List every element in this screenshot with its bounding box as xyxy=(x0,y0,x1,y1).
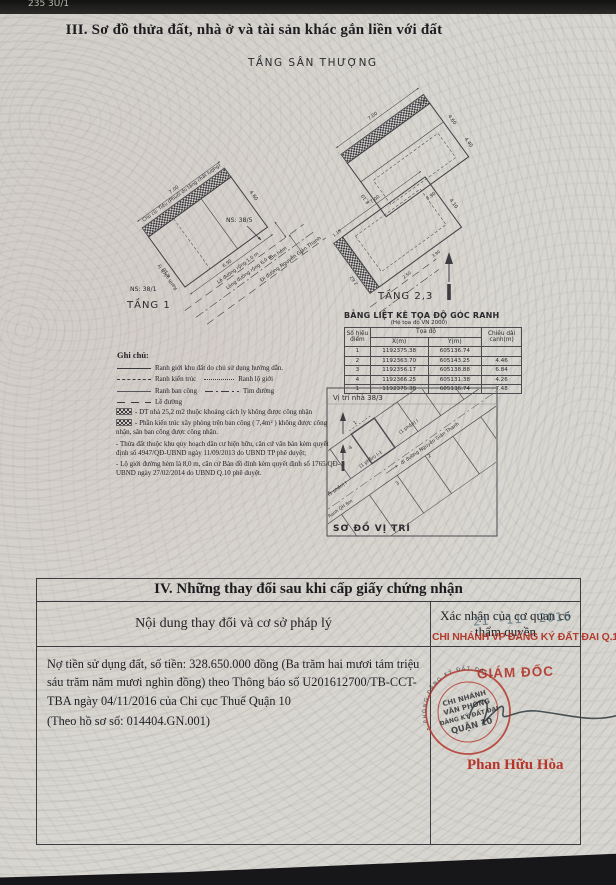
legend-line-dotted xyxy=(204,376,234,380)
dim-f23-b1: 2.50 xyxy=(402,270,413,280)
legend-item: Ranh giới khu đất do chủ sử dụng hướng d… xyxy=(155,364,283,372)
legend-title: Ghi chú: xyxy=(117,350,339,360)
hatch-swatch-icon xyxy=(116,419,132,426)
table-row: 31192356.17605138.886.84 xyxy=(345,366,522,375)
dim-roof-right2: 4.40 xyxy=(463,137,474,149)
change-content-cell: Nợ tiền sử dụng đất, số tiền: 328.650.00… xyxy=(37,647,431,844)
note-3: - Thửa đất thuộc khu quy hoạch dân cư hi… xyxy=(116,440,340,458)
col-y: Y(m) xyxy=(428,337,482,347)
floor1-plan: 7.00 4.60 4.10 6.90 Chủ cũ: Tiêu (Phuổi … xyxy=(122,132,326,330)
north-arrow-icon xyxy=(445,252,453,300)
dim-f1-top: 7.00 xyxy=(168,184,180,195)
office-stamp-text: CHI NHÁNH VP ĐĂNG KÝ ĐẤT ĐAI Q.10 xyxy=(432,631,616,643)
table-row: 21192363.70605143.254.46 xyxy=(345,356,522,365)
neighbor-left-label: NS: 38/1 xyxy=(130,286,157,293)
floor1-balcony-hatch xyxy=(142,168,231,237)
diagram-notes: - DT nhà 25,2 m2 thuộc khoảng cách ly kh… xyxy=(116,408,340,481)
dossier-number: (Theo hồ sơ số: 014404.GN.001) xyxy=(47,712,420,730)
section3-title: III. Sơ đồ thửa đất, nhà ở và tài sản kh… xyxy=(28,22,480,39)
point-3: 3 xyxy=(395,480,401,487)
dim-roof-bottom: 3.90 xyxy=(425,191,437,202)
note-4: - Lộ giới đường hẻm là 8,0 m, căn cứ Bản… xyxy=(116,460,340,478)
col-coord: Tọa độ xyxy=(370,328,481,338)
dim-roof-left: 8.10 xyxy=(360,193,371,205)
le-duong-label: Lề đường rộng 1,0 m xyxy=(215,249,261,285)
tim-hem-label: tim hẻm xyxy=(268,245,289,263)
cut-off-text: 235 3U/1 xyxy=(28,0,69,9)
director-title-stamp: GIÁM ĐỐC xyxy=(477,664,554,682)
roof-floor-label: TẦNG SÂN THƯỢNG xyxy=(247,55,378,69)
coord-table-subtitle: (Hệ tọa độ VN 2000) xyxy=(344,320,494,326)
parcel-diagram: TẦNG SÂN THƯỢNG TẦNG 1 TẦNG 2,3 NS: 38/1… xyxy=(0,0,616,578)
dim-roof-right1: 4.60 xyxy=(446,114,457,126)
legend-item: Ranh kiến trúc xyxy=(155,375,196,383)
section4-title: IV. Những thay đổi sau khi cấp giấy chứn… xyxy=(37,579,580,602)
legend-item: Tim đường xyxy=(243,387,274,395)
point-2: 2 xyxy=(427,453,433,460)
parcel1-label: (1 phần) I xyxy=(397,416,420,435)
dim-f23-top: 7.00 xyxy=(369,194,381,205)
scanned-certificate-page: 235 3U/1 III. Sơ đồ thửa đất, nhà ở và t… xyxy=(0,0,616,885)
dim-f23-small: 1.10 xyxy=(332,228,343,238)
location-north-arrow2-icon xyxy=(340,444,346,471)
legend-item: Ranh ban công xyxy=(155,387,197,395)
dim-roof-small: 0.80 xyxy=(418,96,429,106)
roof-balcony-hatch xyxy=(341,94,430,163)
dim-f1-bottom: 6.90 xyxy=(222,258,234,269)
location-caption: SƠ ĐỒ VỊ TRÍ xyxy=(333,521,411,534)
parcel2-label: (1 phần) I-1 xyxy=(357,448,384,470)
col-length: Chiều dài cạnh(m) xyxy=(482,328,522,347)
photo-top-edge: 235 3U/1 xyxy=(0,0,616,14)
owner-note: Chủ cũ: Tiêu (Phuổi đo tầng chất lượng) xyxy=(140,161,222,224)
table-row: 41192366.25605131.384.26 xyxy=(345,375,522,384)
col-point: Số hiệu điểm xyxy=(345,328,371,347)
location-title: Vị trí nhà 38/3 xyxy=(333,394,383,402)
point-4: 4 xyxy=(348,445,354,452)
dim-f23-right: 4.10 xyxy=(448,198,459,210)
floor23-plan: 7.00 4.10 2.62 2.50 3.90 1.10 xyxy=(319,160,482,315)
floor23-outline xyxy=(343,177,462,287)
roof-terrace-plan: 7.00 4.60 4.40 8.10 3.90 0.80 xyxy=(325,76,485,233)
roof-outline xyxy=(347,103,468,216)
col-x: X(m) xyxy=(370,337,428,347)
location-north-arrow-icon xyxy=(340,412,346,434)
dim-f1-right: 4.60 xyxy=(248,190,259,202)
subject-parcel xyxy=(351,418,395,464)
note-1: - DT nhà 25,2 m2 thuộc khoảng cách ly kh… xyxy=(116,408,340,417)
point-1: 1 xyxy=(352,420,358,427)
legend-line-dashed xyxy=(117,376,151,380)
street-label: Đi đường Nguyễn Giản Thanh xyxy=(259,235,323,284)
table-row: 11192375.38605136.747.48 xyxy=(345,385,522,394)
dim-f23-b2: 3.90 xyxy=(431,249,442,259)
dim-roof-top: 7.00 xyxy=(367,111,379,122)
legend-line-dashdot xyxy=(205,391,239,392)
change-content: Nợ tiền sử dụng đất, số tiền: 328.650.00… xyxy=(47,655,420,710)
dim-f23-left: 2.62 xyxy=(349,274,360,286)
legend-item: Lề đường xyxy=(155,398,182,406)
map-legend: Ghi chú: Ranh giới khu đất do chủ sử dụn… xyxy=(117,350,339,406)
legend-line-solid xyxy=(117,365,151,369)
legend-item: Ranh lộ giới xyxy=(238,375,273,383)
neighbor-right-arrow xyxy=(247,226,261,240)
legend-line-thin xyxy=(117,388,151,392)
legend-line-longdash xyxy=(117,402,151,403)
dim-f1-left: 4.10 xyxy=(161,266,172,278)
parcel3-label: (1 phần) I xyxy=(325,479,348,498)
floor1-label: TẦNG 1 xyxy=(126,297,171,311)
location-street-label: đi đường Nguyễn Giản Thanh xyxy=(399,420,460,466)
section4-table: IV. Những thay đổi sau khi cấp giấy chứn… xyxy=(36,578,581,845)
photo-bottom-edge xyxy=(0,851,616,885)
long-duong-label: Lòng đường rộng 6,0 m xyxy=(225,252,275,291)
ranh-qh-label: Ranh QH 8m xyxy=(327,498,354,519)
floor23-label: TẦNG 2,3 xyxy=(377,288,433,302)
ranh-cach-ly-label: Ranh cách ly xyxy=(155,263,179,292)
floor1-outline xyxy=(149,177,268,287)
signer-name: Phan Hữu Hòa xyxy=(467,757,564,774)
hatch-swatch-icon xyxy=(116,408,132,415)
table-row: 11192375.38605136.74 xyxy=(345,347,522,356)
neighbor-right-label: NS: 38/5 xyxy=(226,217,253,224)
floor23-balcony-hatch xyxy=(334,237,379,294)
col-header-content: Nội dung thay đổi và cơ sở pháp lý xyxy=(37,602,431,646)
coordinate-table: BẢNG LIỆT KÊ TỌA ĐỘ GÓC RANH (Hệ tọa độ … xyxy=(344,311,524,394)
coord-table-title: BẢNG LIỆT KÊ TỌA ĐỘ GÓC RANH xyxy=(344,311,524,320)
note-2: - Phần kiến trúc xây phòng trên ban công… xyxy=(116,419,340,437)
